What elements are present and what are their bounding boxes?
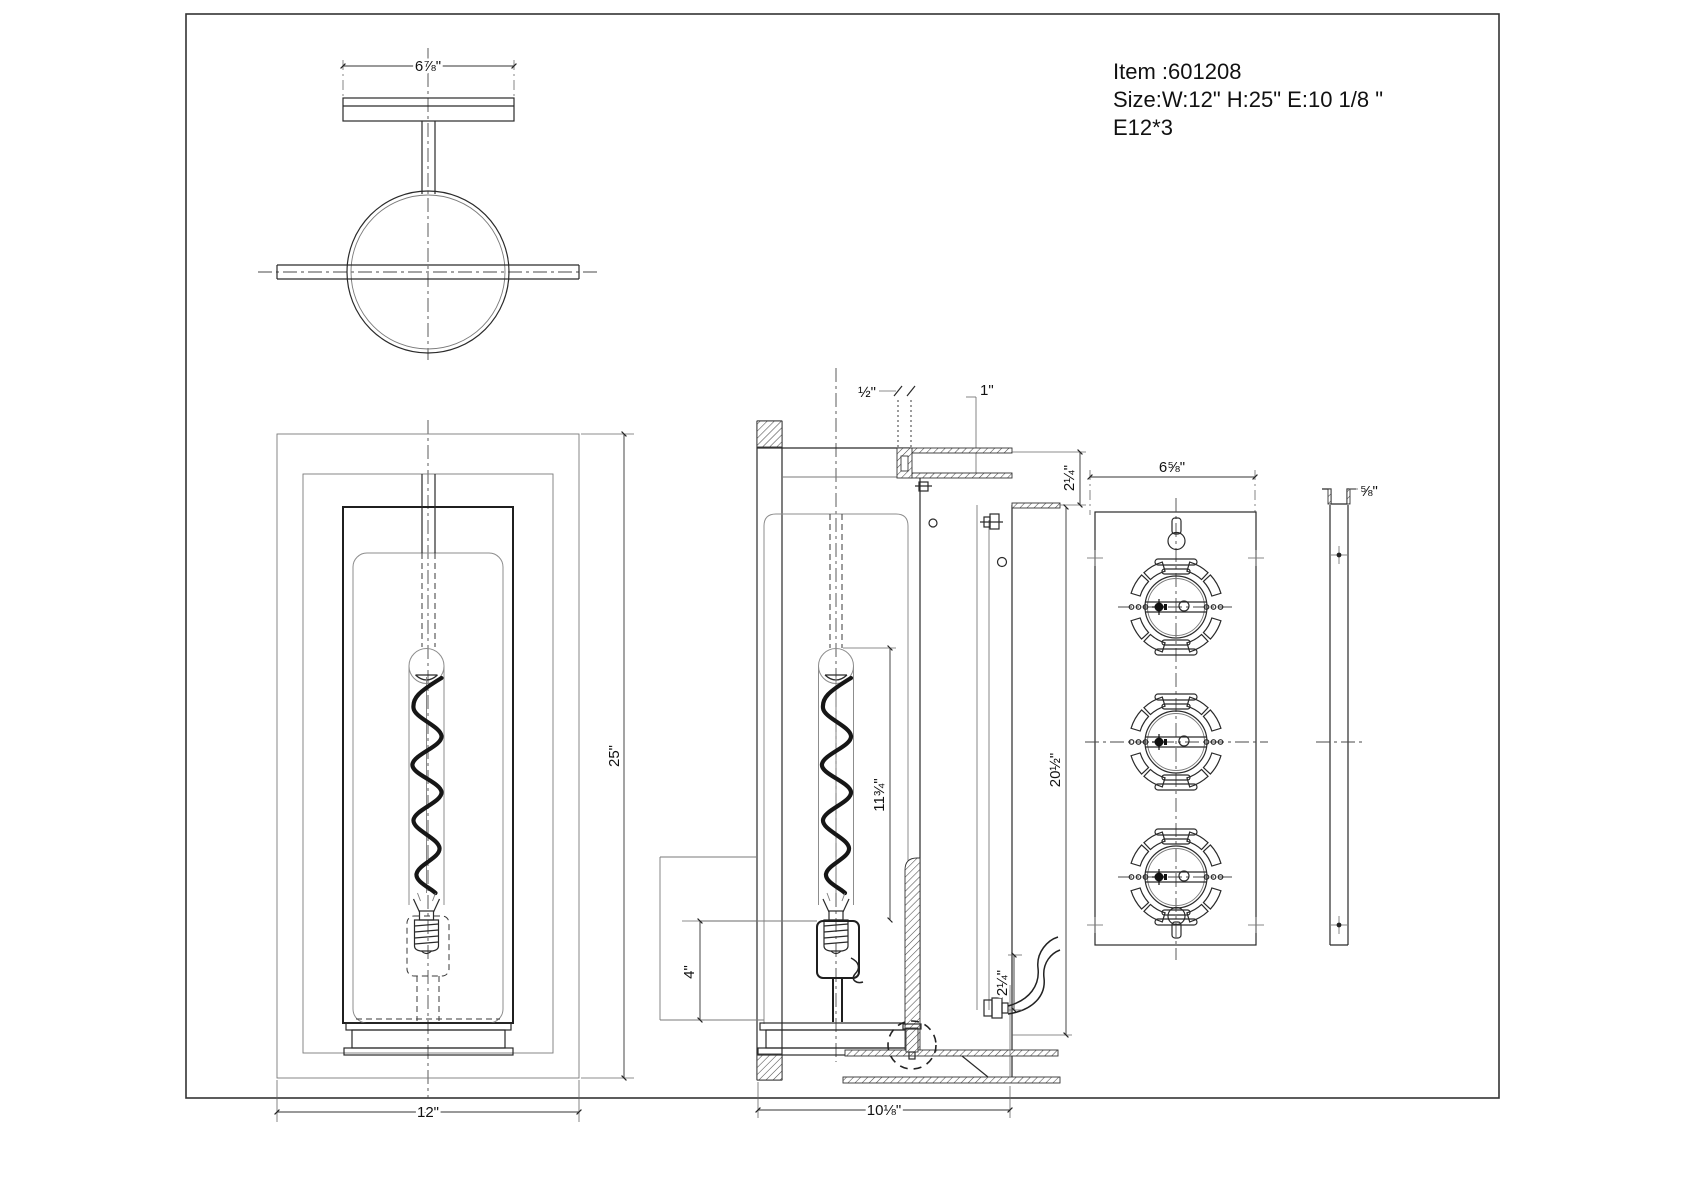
backplate-top-view (343, 98, 514, 121)
section-view: ½" 1" 11¾" (660, 368, 1086, 1119)
bulb-section (819, 649, 854, 954)
technical-drawing-sheet: Item :601208 Size:W:12" H:25" E:10 1/8 "… (0, 0, 1684, 1190)
keyhole-bottom (1168, 908, 1185, 939)
dim-backplate-thickness: ⅝" (1360, 483, 1378, 500)
bottom-arm-strip (845, 1050, 1058, 1056)
backplate-outline (1095, 512, 1256, 945)
top-mounting-arm (897, 448, 1012, 478)
dim-backplate-height: 20½" (1047, 753, 1064, 788)
item-number: Item :601208 (1113, 59, 1241, 84)
backplate-side-view: ⅝" (1316, 483, 1378, 945)
socket-housing-outline (660, 857, 817, 1020)
wall-plate-section (920, 478, 1060, 1079)
mounting-bolt (980, 514, 1007, 567)
wire-connector (984, 998, 1008, 1018)
mounting-screw-top (915, 482, 937, 527)
detail-circle (888, 1021, 936, 1069)
dim-frame-depth: 1" (980, 382, 994, 399)
top-notch (1322, 489, 1356, 504)
bulb-front (409, 649, 444, 954)
size-spec: Size:W:12" H:25" E:10 1/8 " (1113, 87, 1383, 112)
supply-wire-1 (1008, 937, 1058, 1006)
bottom-cap-front (344, 1023, 513, 1055)
dim-frame-thickness: ½" (858, 384, 876, 401)
dim-top-offset: 2¼" (1061, 465, 1078, 491)
dim-socket-box-height: 4" (681, 965, 698, 979)
frame-section-strip (757, 421, 782, 1080)
side-screw-marks (1331, 546, 1347, 934)
socket-box-section (817, 921, 859, 978)
backplate-front-view: 6⅝" (1085, 459, 1268, 960)
dim-bottom-offset: 2¼" (994, 970, 1011, 996)
top-view: 6⅞" (258, 48, 598, 360)
socket-wire (851, 958, 863, 983)
dim-top-width: 6⅞" (415, 58, 441, 75)
supply-wire-2 (1008, 950, 1060, 1014)
dim-bulb-length: 11¾" (871, 778, 888, 811)
keyhole-top (1168, 518, 1185, 550)
lamp-spec: E12*3 (1113, 115, 1173, 140)
info-block: Item :601208 Size:W:12" H:25" E:10 1/8 "… (1113, 59, 1383, 140)
dim-backplate-width: 6⅝" (1159, 459, 1185, 476)
front-view: 25" 12" (277, 420, 634, 1122)
dim-front-width: 12" (417, 1104, 439, 1121)
dim-extension-depth: 10⅛" (867, 1102, 902, 1119)
dim-front-height: 25" (606, 745, 623, 767)
drawing-canvas: Item :601208 Size:W:12" H:25" E:10 1/8 "… (0, 0, 1684, 1190)
